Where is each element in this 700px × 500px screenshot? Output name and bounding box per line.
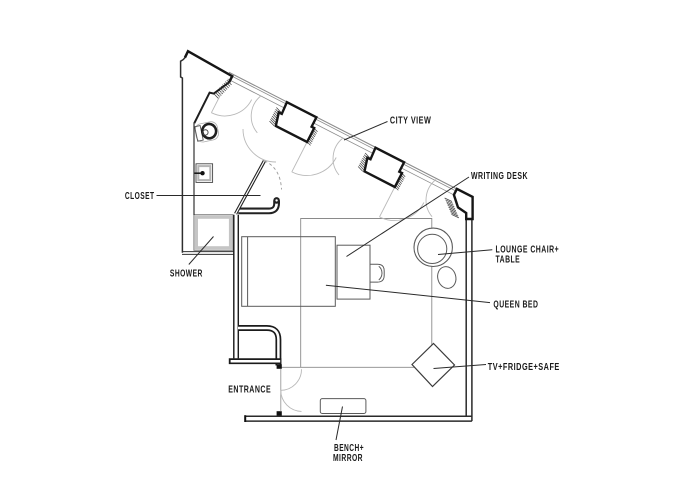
- svg-text:QUEEN BED: QUEEN BED: [493, 299, 538, 310]
- svg-text:CITY VIEW: CITY VIEW: [390, 115, 432, 126]
- svg-text:SHOWER: SHOWER: [170, 268, 203, 279]
- svg-text:ENTRANCE: ENTRANCE: [228, 384, 271, 395]
- svg-text:TV+FRIDGE+SAFE: TV+FRIDGE+SAFE: [488, 362, 560, 373]
- svg-text:MIRROR: MIRROR: [333, 453, 363, 464]
- svg-text:CLOSET: CLOSET: [125, 191, 155, 202]
- svg-text:TABLE: TABLE: [496, 255, 521, 266]
- svg-text:WRITING DESK: WRITING DESK: [471, 171, 528, 182]
